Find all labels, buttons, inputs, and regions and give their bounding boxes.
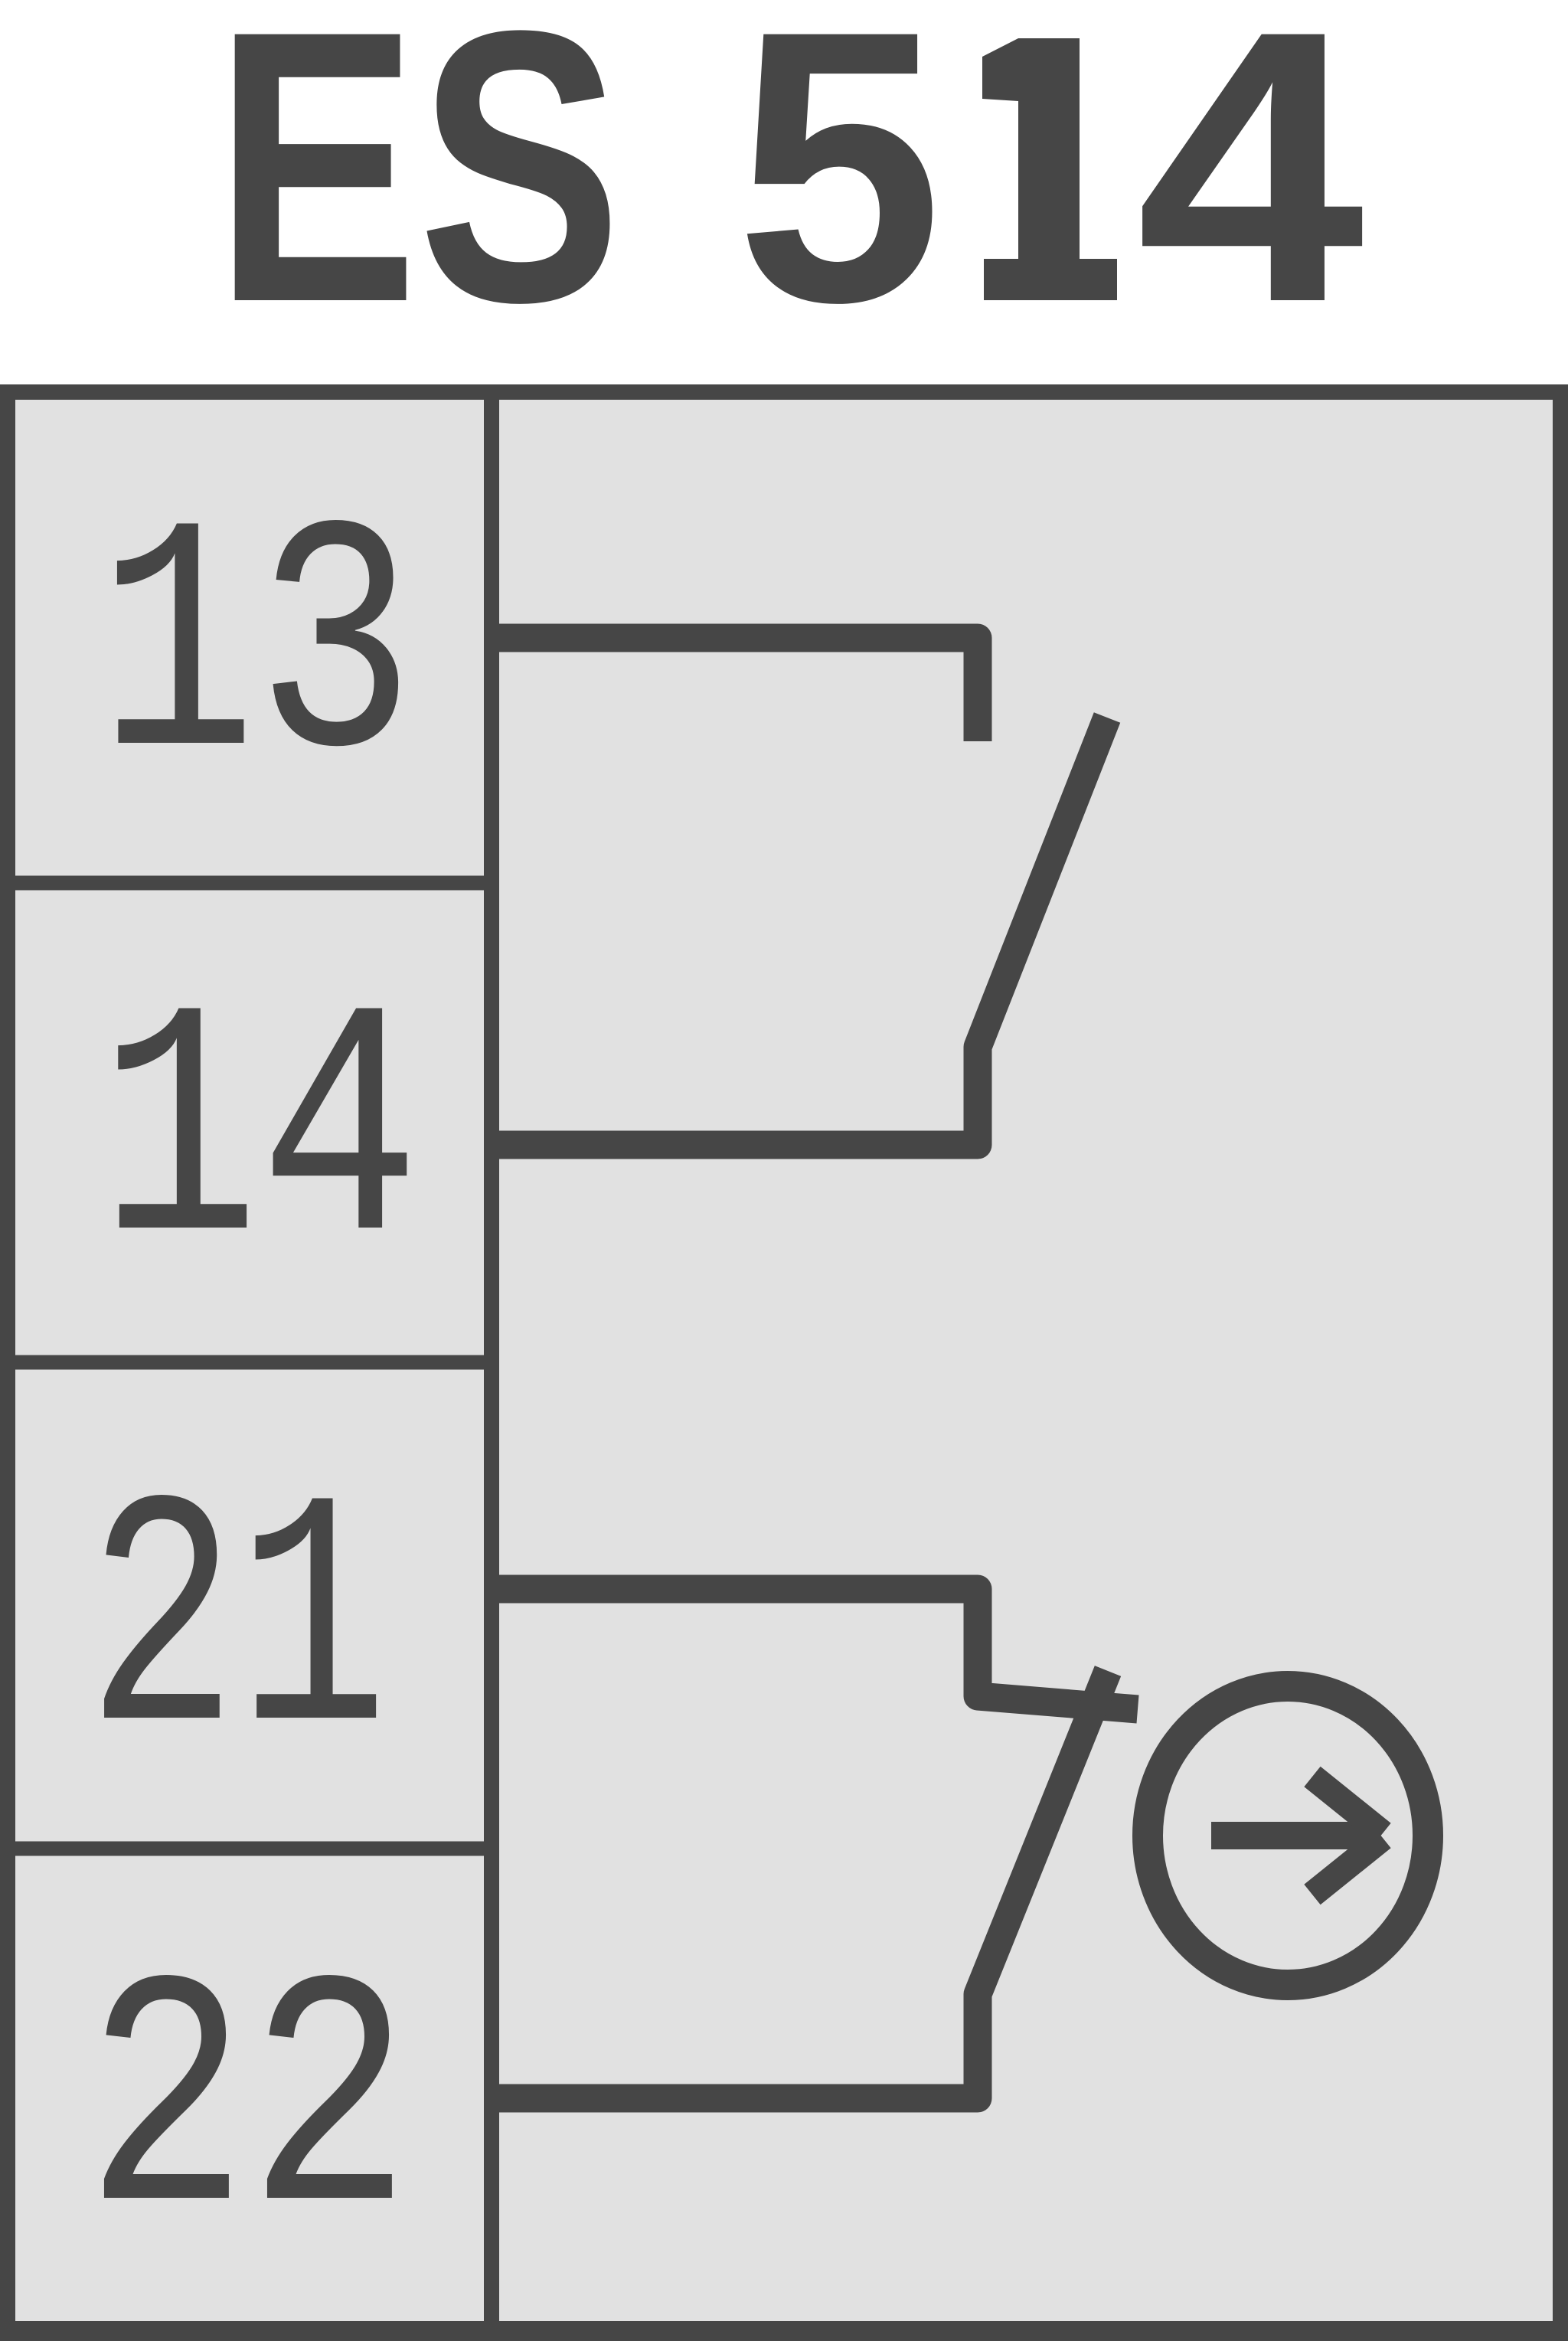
svg-text:22: 22	[85, 1921, 411, 2298]
svg-text:14: 14	[99, 950, 420, 1328]
svg-text:13: 13	[98, 466, 415, 843]
svg-text:5: 5	[736, 0, 942, 383]
svg-text:4: 4	[1136, 0, 1367, 383]
svg-text:ES: ES	[214, 0, 622, 383]
svg-text:21: 21	[87, 1440, 388, 1818]
